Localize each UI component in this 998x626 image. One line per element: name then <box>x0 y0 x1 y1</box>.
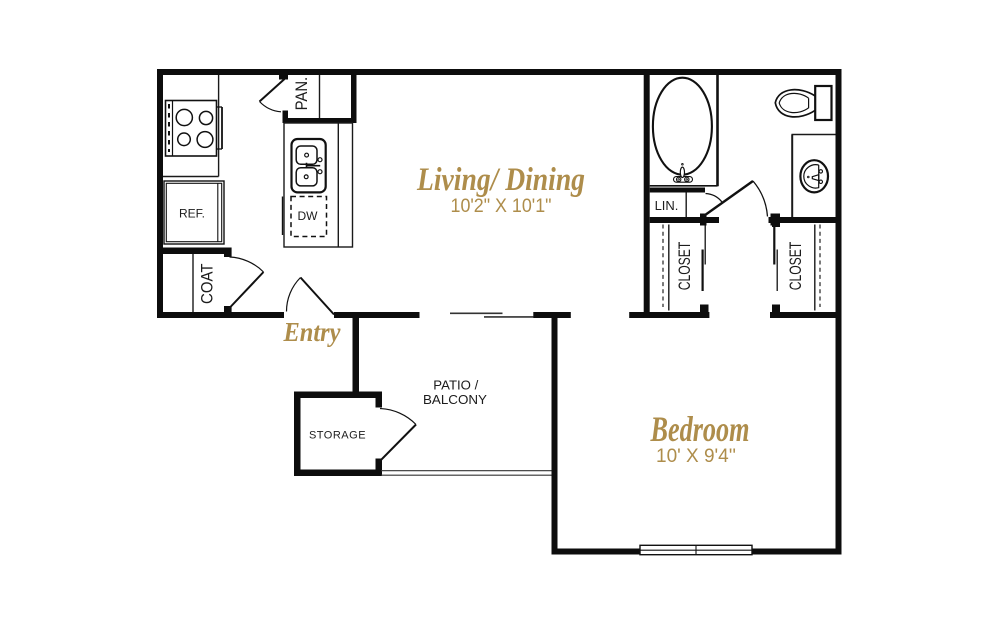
svg-text:DW: DW <box>298 209 319 223</box>
svg-text:CLOSET: CLOSET <box>675 242 694 291</box>
svg-text:LIN.: LIN. <box>655 198 679 213</box>
svg-text:Bedroom: Bedroom <box>650 409 750 449</box>
svg-text:10' X 9'4'': 10' X 9'4'' <box>656 446 736 467</box>
svg-text:STORAGE: STORAGE <box>309 430 366 442</box>
svg-text:Entry: Entry <box>283 317 342 347</box>
svg-text:COAT: COAT <box>197 263 216 304</box>
svg-text:REF.: REF. <box>179 207 205 221</box>
svg-text:CLOSET: CLOSET <box>786 242 805 291</box>
svg-text:BALCONY: BALCONY <box>423 393 488 407</box>
svg-text:PATIO /: PATIO / <box>433 379 479 393</box>
svg-text:Living/ Dining: Living/ Dining <box>416 162 585 198</box>
svg-text:10'2" X 10'1": 10'2" X 10'1" <box>451 196 552 217</box>
svg-text:PAN.: PAN. <box>293 77 311 111</box>
